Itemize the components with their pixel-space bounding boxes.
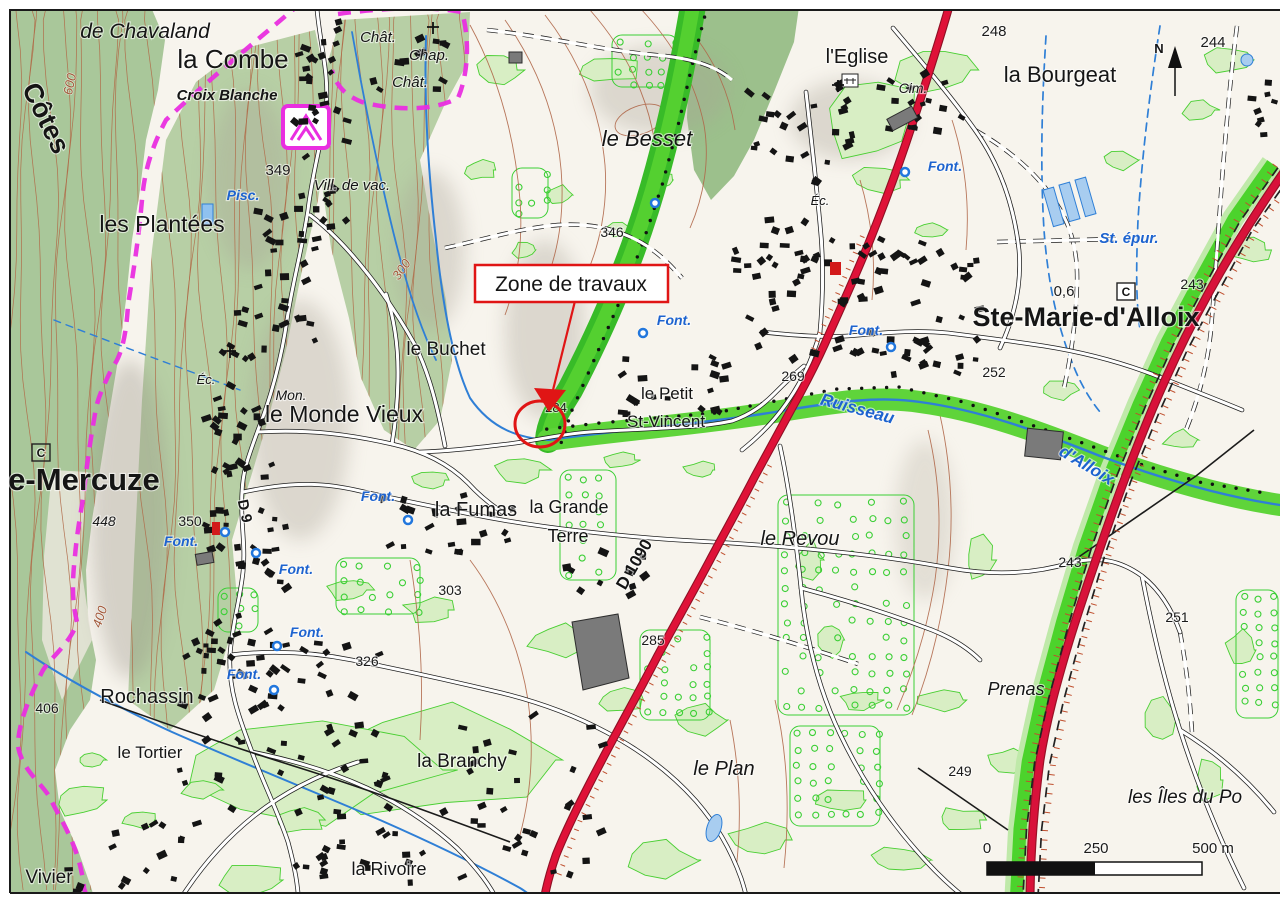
place-label-le-revou: le Revou: [761, 528, 840, 550]
tree-dot: [1080, 441, 1083, 444]
building: [298, 315, 307, 322]
tree-dot: [607, 326, 610, 329]
distance-marker-0-6: 0,6: [1054, 283, 1075, 300]
building: [780, 243, 790, 248]
building: [337, 813, 346, 819]
tree-dot: [1223, 485, 1226, 488]
building: [262, 549, 271, 554]
pond: [1241, 54, 1253, 66]
tree-dot: [680, 110, 683, 113]
tree-dot: [1092, 445, 1095, 448]
tree-dot: [1104, 450, 1107, 453]
tree-dot: [1211, 483, 1214, 486]
place-label-la-rivoire: la Rivoire: [351, 859, 426, 879]
spot-height-252: 252: [982, 364, 1006, 380]
place-label-ste-marie-d-alloix: Ste-Marie-d'Alloix: [973, 302, 1200, 332]
place-label-vivier: Vivier: [25, 867, 73, 888]
tree-dot: [649, 219, 652, 222]
place-label-le-buchet: le Buchet: [406, 339, 486, 360]
building: [392, 831, 398, 836]
fountain-label-3: Font.: [290, 624, 324, 640]
building: [282, 524, 289, 531]
building: [744, 263, 751, 268]
tree-dot: [685, 86, 688, 89]
place-label-le-tortier: le Tortier: [118, 743, 183, 762]
building: [787, 290, 796, 297]
tree-dot: [688, 74, 691, 77]
building: [297, 238, 307, 243]
annotation-callout-text: Zone de travaux: [495, 273, 647, 296]
building: [973, 357, 979, 362]
building: [769, 298, 777, 305]
place-label-l-eglise: l'Eglise: [826, 46, 889, 68]
poi-label-ecole-mercuze: Éc.: [197, 372, 216, 387]
building: [303, 864, 310, 869]
tree-dot: [885, 386, 888, 389]
building: [211, 638, 218, 644]
place-label-la-combe: la Combe: [177, 44, 288, 74]
tree-dot: [587, 371, 590, 374]
tree-dot: [860, 387, 863, 390]
tree-dot: [1163, 470, 1166, 473]
building: [314, 641, 323, 647]
building: [272, 517, 277, 522]
building: [785, 155, 794, 162]
fountain-icon: [270, 686, 278, 694]
tree-dot: [584, 423, 587, 426]
fountain-label-bourgeat: Font.: [928, 158, 962, 174]
poi-label-ecole-ste-marie: Éc.: [811, 193, 830, 208]
spot-height-349: 349: [265, 162, 290, 179]
tree-dot: [657, 194, 660, 197]
building: [226, 471, 232, 478]
place-label-le-petit: le Petit: [641, 384, 693, 403]
fountain-icon: [901, 168, 909, 176]
tree-dot: [1199, 481, 1202, 484]
scale-tick-500: 500 m: [1192, 840, 1234, 857]
poi-label-cimetiere: Cim.: [899, 80, 928, 96]
place-label-le-besset: le Besset: [602, 126, 693, 151]
topo-map: de Chavaland la Combe Croix Blanche Côte…: [0, 0, 1280, 905]
place-label-le-monde-vieux: le Monde Vieux: [265, 401, 424, 427]
building: [281, 741, 287, 746]
building: [299, 231, 305, 237]
building: [280, 273, 289, 280]
place-label-mercuze: e-Mercuze: [8, 462, 160, 497]
tree-dot: [1068, 437, 1071, 440]
tree-dot: [1246, 488, 1249, 491]
tree-dot: [703, 15, 706, 18]
building: [272, 324, 280, 332]
place-label-croix-blanche: Croix Blanche: [177, 87, 278, 104]
tree-dot: [1008, 416, 1011, 419]
tree-dot: [910, 388, 913, 391]
building: [307, 223, 313, 228]
place-label-les-plantees: les Plantées: [99, 211, 224, 237]
building: [562, 563, 571, 571]
tree-dot: [1258, 490, 1261, 493]
building: [201, 668, 206, 674]
place-label-de-chavaland: de Chavaland: [80, 20, 211, 43]
tree-dot: [984, 408, 987, 411]
topo-map-screenshot: de Chavaland la Combe Croix Blanche Côte…: [0, 0, 1280, 905]
building: [261, 474, 269, 480]
building: [204, 527, 214, 534]
fountain-icon: [651, 199, 659, 207]
building: [207, 648, 216, 654]
building: [281, 298, 289, 303]
building: [299, 118, 309, 125]
building: [751, 146, 758, 151]
building: [477, 823, 485, 828]
building: [891, 98, 899, 104]
building: [582, 858, 590, 865]
tree-dot: [1020, 420, 1023, 423]
place-label-st-vincent: St-Vincent: [627, 412, 705, 431]
building: [958, 363, 964, 369]
spot-height-326: 326: [355, 653, 379, 669]
building: [270, 248, 277, 253]
building: [218, 412, 228, 419]
spot-height-303: 303: [438, 582, 462, 598]
building: [586, 724, 596, 730]
building: [223, 523, 228, 527]
tree-dot: [560, 441, 563, 444]
building: [265, 269, 271, 276]
tree-dot: [558, 426, 561, 429]
fountain-label-petit-st-vincent: Font.: [657, 312, 691, 328]
place-label-la-fumas: la Fumas: [435, 499, 517, 521]
tree-dot: [677, 122, 680, 125]
building: [261, 345, 266, 352]
building: [277, 579, 284, 584]
place-label-prenas: Prenas: [987, 679, 1044, 699]
building: [203, 653, 209, 659]
building: [824, 160, 830, 165]
spot-height-244: 244: [1200, 34, 1225, 51]
tree-dot: [848, 387, 851, 390]
building: [514, 778, 520, 783]
tree-dot: [697, 39, 700, 42]
building: [215, 507, 224, 514]
building: [959, 267, 967, 273]
building: [832, 129, 839, 136]
building: [486, 788, 493, 795]
fountain-icon: [221, 528, 229, 536]
tree-dot: [947, 397, 950, 400]
tree-dot: [644, 231, 647, 234]
tree-dot: [571, 424, 574, 427]
place-label-la-bourgeat: la Bourgeat: [1004, 62, 1117, 87]
building: [691, 364, 698, 370]
building: [321, 39, 327, 46]
building: [891, 371, 897, 378]
tree-dot: [748, 404, 751, 407]
tree-dot: [667, 158, 670, 161]
spot-height-243-junction: 243: [1058, 554, 1082, 570]
tree-dot: [636, 255, 639, 258]
building: [326, 223, 335, 230]
symbol-c-left: C: [37, 446, 46, 460]
tree-dot: [664, 170, 667, 173]
building: [359, 758, 368, 763]
tree-dot: [661, 182, 664, 185]
place-label-la-branchy: la Branchy: [417, 751, 507, 772]
spot-height-448: 448: [92, 513, 116, 529]
fountain-label-4: Font.: [227, 666, 261, 682]
building: [719, 375, 729, 382]
scale-tick-0: 0: [983, 840, 991, 857]
tree-dot: [602, 337, 605, 340]
building: [297, 678, 305, 684]
fountain-icon: [639, 329, 647, 337]
tree-dot: [611, 315, 614, 318]
poi-label-chateau-2: Chât.: [392, 74, 428, 91]
public-building: [212, 522, 220, 535]
building: [234, 544, 241, 551]
spot-height-269: 269: [781, 368, 805, 384]
tree-dot: [959, 400, 962, 403]
building: [638, 375, 648, 382]
poi-label-station-epuration: St. épur.: [1099, 230, 1158, 247]
tree-dot: [700, 27, 703, 30]
fountain-label-mercuze: Font.: [164, 533, 198, 549]
tree-dot: [1152, 466, 1155, 469]
building: [313, 206, 319, 212]
place-label-la-grande: la Grande: [529, 497, 608, 517]
building: [217, 659, 223, 664]
poi-label-chapelle: Chap.: [409, 47, 449, 64]
tree-dot: [545, 427, 548, 430]
tree-dot: [897, 385, 900, 388]
fountain-icon: [887, 343, 895, 351]
building: [622, 356, 629, 362]
fountain-label-2: Font.: [279, 561, 313, 577]
spot-height-248: 248: [981, 23, 1006, 40]
place-label-terre: Terre: [547, 526, 588, 546]
poi-label-vill-de-vac: Vill. de vac.: [314, 177, 390, 194]
building: [203, 643, 208, 647]
building: [402, 851, 410, 857]
tree-dot: [971, 404, 974, 407]
spot-height-243-right: 243: [1180, 276, 1204, 292]
building: [933, 127, 942, 135]
tree-dot: [616, 304, 619, 307]
public-building: [830, 262, 841, 275]
poi-label-chateau-1: Chât.: [360, 29, 396, 46]
symbol-c-right: C: [1122, 285, 1131, 299]
building: [234, 310, 241, 316]
spot-height-346: 346: [600, 224, 624, 240]
fountain-icon: [273, 642, 281, 650]
scale-tick-250: 250: [1083, 840, 1108, 857]
building: [939, 105, 947, 112]
building: [733, 268, 741, 273]
tree-dot: [611, 420, 614, 423]
tree-dot: [872, 386, 875, 389]
building: [471, 539, 480, 545]
building: [769, 291, 776, 298]
building: [333, 809, 341, 815]
tree-dot: [922, 391, 925, 394]
fountain-label-eglise: Font.: [849, 322, 883, 338]
building: [294, 206, 303, 212]
tree-dot: [1175, 473, 1178, 476]
spot-height-406: 406: [35, 700, 59, 716]
building: [967, 263, 973, 267]
building: [849, 243, 855, 249]
fountain-icon: [404, 516, 412, 524]
tree-dot: [725, 409, 728, 412]
poi-label-piscine: Pisc.: [227, 187, 260, 203]
tree-dot: [694, 50, 697, 53]
building: [399, 58, 409, 65]
building: [1260, 132, 1267, 137]
tree-dot: [597, 421, 600, 424]
tree-dot: [576, 396, 579, 399]
building: [760, 243, 769, 249]
building: [433, 86, 441, 92]
fountain-label-fumas: Font.: [361, 488, 395, 504]
building: [764, 216, 774, 223]
tree-dot: [682, 98, 685, 101]
north-label: N: [1154, 41, 1163, 56]
scale-bar-filled-half: [987, 862, 1095, 875]
building: [238, 562, 246, 569]
tree-dot: [567, 419, 570, 422]
spot-height-350: 350: [178, 513, 202, 529]
place-label-le-plan: le Plan: [693, 758, 754, 780]
place-label-rochassin: Rochassin: [100, 686, 193, 708]
tree-dot: [996, 412, 999, 415]
tree-dot: [935, 394, 938, 397]
tree-dot: [772, 400, 775, 403]
building: [254, 413, 261, 420]
spot-height-285: 285: [641, 632, 665, 648]
building: [1247, 95, 1256, 101]
place-label-les-iles: les Îles du Po: [1128, 786, 1242, 808]
tree-dot: [570, 408, 573, 411]
tree-dot: [737, 407, 740, 410]
tree-dot: [835, 387, 838, 390]
building: [275, 240, 283, 246]
fountain-icon: [252, 549, 260, 557]
spot-height-249: 249: [948, 763, 972, 779]
building: [354, 722, 364, 729]
building: [471, 818, 479, 824]
tree-dot: [597, 348, 600, 351]
spot-height-251: 251: [1165, 609, 1189, 625]
building: [408, 879, 413, 886]
tree-dot: [1032, 424, 1035, 427]
tree-dot: [810, 392, 813, 395]
campsite-icon: [283, 106, 329, 148]
building: [339, 839, 345, 844]
building: [973, 257, 980, 264]
building: [401, 544, 406, 549]
building: [433, 38, 440, 44]
building: [1265, 79, 1272, 85]
tree-dot: [592, 359, 595, 362]
tree-dot: [1234, 487, 1237, 490]
tree-dot: [581, 384, 584, 387]
